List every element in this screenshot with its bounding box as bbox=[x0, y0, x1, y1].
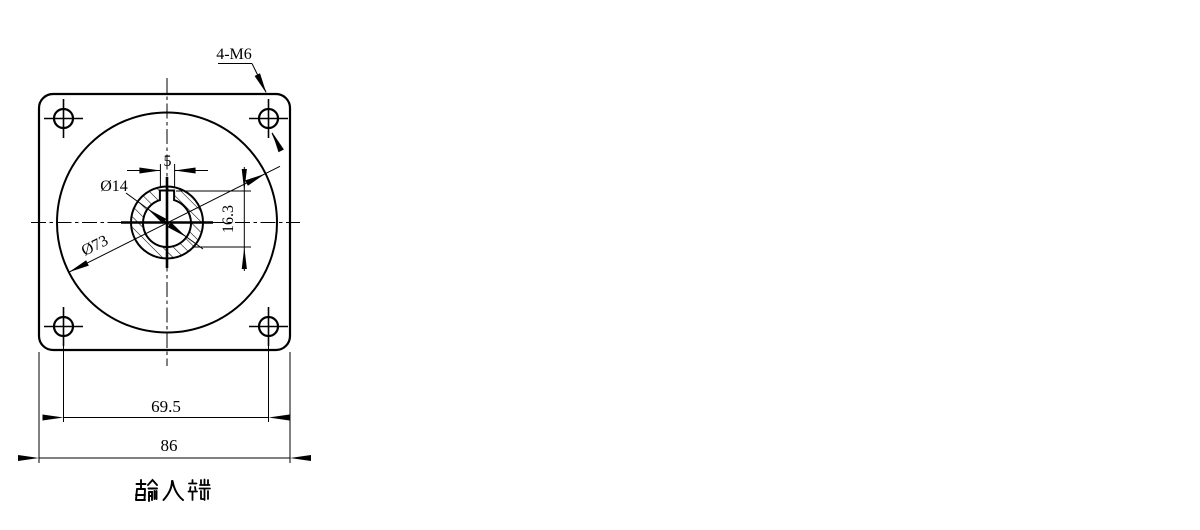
svg-text:Ø14: Ø14 bbox=[100, 178, 128, 195]
svg-text:4-M6: 4-M6 bbox=[216, 46, 252, 63]
svg-text:5: 5 bbox=[164, 153, 172, 170]
svg-text:16.3: 16.3 bbox=[220, 205, 237, 233]
svg-text:69.5: 69.5 bbox=[151, 397, 181, 416]
svg-text:86: 86 bbox=[161, 436, 178, 455]
